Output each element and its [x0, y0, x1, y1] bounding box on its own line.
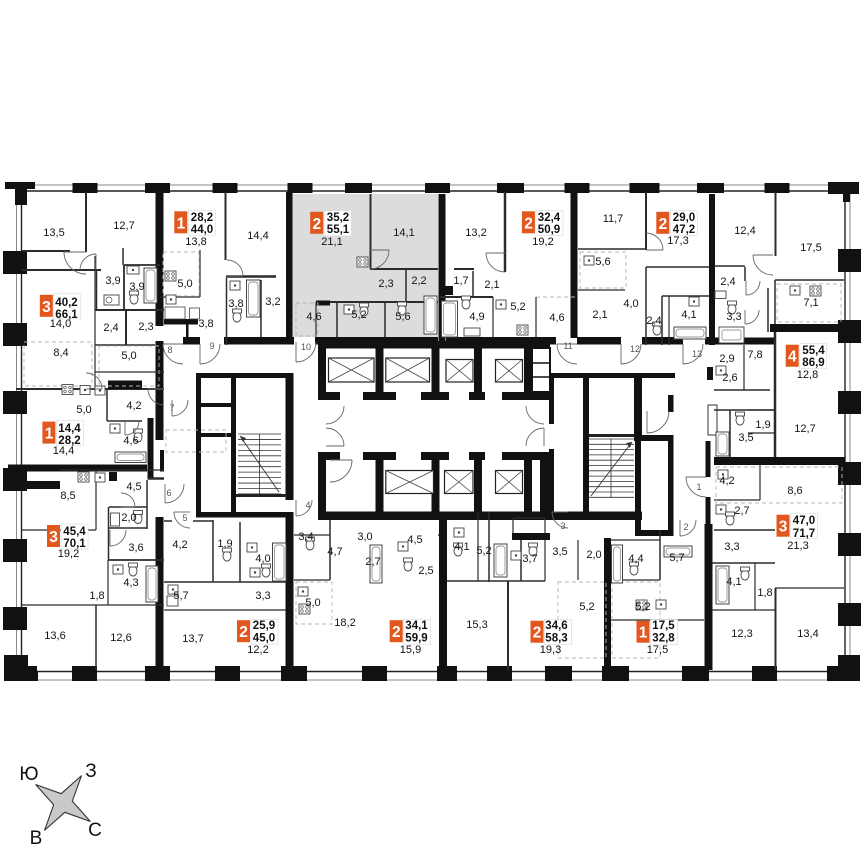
svg-text:12,4: 12,4: [734, 225, 755, 237]
svg-text:4,2: 4,2: [172, 539, 187, 551]
svg-text:47,0: 47,0: [793, 515, 815, 527]
svg-text:5,2: 5,2: [476, 545, 491, 557]
svg-text:55,4: 55,4: [802, 345, 825, 357]
svg-text:4,9: 4,9: [469, 311, 484, 323]
svg-text:2,9: 2,9: [719, 353, 734, 365]
svg-text:13,2: 13,2: [465, 227, 486, 239]
svg-text:5,2: 5,2: [635, 601, 650, 613]
svg-text:3: 3: [49, 529, 58, 546]
svg-text:2: 2: [392, 624, 401, 641]
svg-text:4,7: 4,7: [327, 546, 342, 558]
svg-text:3,3: 3,3: [724, 541, 739, 553]
svg-text:13,8: 13,8: [185, 236, 206, 248]
svg-text:17,5: 17,5: [800, 242, 821, 254]
svg-text:1,8: 1,8: [757, 587, 772, 599]
svg-text:3,9: 3,9: [129, 281, 144, 293]
svg-text:Ю: Ю: [19, 764, 38, 785]
svg-text:2,3: 2,3: [378, 278, 393, 290]
svg-text:71,7: 71,7: [793, 528, 815, 540]
svg-text:14,4: 14,4: [53, 445, 74, 457]
svg-text:4: 4: [788, 349, 797, 366]
svg-text:8: 8: [167, 345, 172, 355]
svg-text:4,5: 4,5: [407, 534, 422, 546]
svg-text:15,3: 15,3: [466, 619, 487, 631]
svg-text:12: 12: [630, 344, 640, 354]
svg-text:3,5: 3,5: [552, 546, 567, 558]
svg-text:12,7: 12,7: [113, 220, 134, 232]
svg-text:3,4: 3,4: [298, 531, 313, 543]
svg-text:29,0: 29,0: [673, 212, 695, 224]
svg-text:4,5: 4,5: [126, 481, 141, 493]
svg-text:5,6: 5,6: [395, 311, 410, 323]
svg-text:19,3: 19,3: [540, 644, 561, 656]
svg-text:13: 13: [692, 349, 702, 359]
svg-text:34,6: 34,6: [545, 620, 567, 632]
svg-text:10: 10: [301, 342, 311, 352]
svg-text:2: 2: [659, 216, 668, 233]
svg-text:4,4: 4,4: [628, 553, 643, 565]
svg-text:3,3: 3,3: [726, 311, 741, 323]
svg-text:3: 3: [779, 519, 788, 536]
svg-text:32,4: 32,4: [538, 212, 561, 224]
svg-text:4,1: 4,1: [726, 576, 741, 588]
svg-text:1: 1: [45, 426, 54, 443]
svg-text:4,0: 4,0: [623, 298, 638, 310]
svg-text:7: 7: [169, 403, 174, 413]
svg-text:59,9: 59,9: [405, 633, 427, 645]
svg-text:17,5: 17,5: [652, 620, 675, 632]
svg-text:1,8: 1,8: [89, 590, 104, 602]
svg-text:13,4: 13,4: [797, 628, 818, 640]
svg-text:45,4: 45,4: [63, 526, 86, 538]
svg-text:45,0: 45,0: [253, 633, 275, 645]
svg-text:14,0: 14,0: [50, 318, 71, 330]
svg-text:11,7: 11,7: [603, 213, 624, 225]
svg-text:4,2: 4,2: [719, 475, 734, 487]
svg-text:9: 9: [209, 341, 214, 351]
svg-text:40,2: 40,2: [55, 297, 77, 309]
svg-text:11: 11: [563, 341, 572, 351]
svg-text:5,7: 5,7: [669, 552, 684, 564]
svg-text:2,7: 2,7: [365, 556, 380, 568]
svg-text:2: 2: [683, 522, 688, 532]
svg-text:14,4: 14,4: [247, 230, 268, 242]
svg-text:1: 1: [177, 215, 186, 232]
svg-text:12,3: 12,3: [731, 628, 752, 640]
svg-text:34,1: 34,1: [405, 620, 428, 632]
svg-text:2,4: 2,4: [720, 276, 735, 288]
svg-text:4,1: 4,1: [454, 541, 469, 553]
svg-text:3,2: 3,2: [265, 296, 280, 308]
svg-text:7,1: 7,1: [803, 297, 818, 309]
svg-text:2,3: 2,3: [138, 321, 153, 333]
svg-text:12,8: 12,8: [797, 369, 818, 381]
svg-text:2,2: 2,2: [411, 275, 426, 287]
svg-text:21,3: 21,3: [787, 540, 808, 552]
svg-text:3,8: 3,8: [198, 318, 213, 330]
svg-text:3,5: 3,5: [738, 432, 753, 444]
svg-text:55,1: 55,1: [327, 224, 350, 236]
svg-text:14,4: 14,4: [58, 423, 81, 435]
svg-text:4,6: 4,6: [123, 435, 138, 447]
svg-text:3: 3: [42, 299, 51, 316]
svg-text:12,2: 12,2: [247, 644, 268, 656]
svg-text:3,3: 3,3: [255, 590, 270, 602]
svg-text:5: 5: [182, 513, 187, 523]
svg-text:4,6: 4,6: [549, 312, 564, 324]
svg-text:44,0: 44,0: [191, 224, 213, 236]
svg-text:28,2: 28,2: [191, 212, 213, 224]
svg-text:12,7: 12,7: [794, 423, 815, 435]
svg-text:4,3: 4,3: [123, 577, 138, 589]
svg-text:5,2: 5,2: [579, 601, 594, 613]
svg-text:13,5: 13,5: [43, 227, 64, 239]
svg-text:3,9: 3,9: [105, 275, 120, 287]
svg-text:13,7: 13,7: [182, 633, 203, 645]
svg-text:1: 1: [696, 482, 701, 492]
svg-text:17,3: 17,3: [667, 235, 688, 247]
svg-text:8,6: 8,6: [787, 485, 802, 497]
svg-text:2,4: 2,4: [646, 315, 661, 327]
svg-text:4,6: 4,6: [306, 311, 321, 323]
svg-text:8,4: 8,4: [53, 347, 68, 359]
svg-text:3,6: 3,6: [128, 542, 143, 554]
svg-text:5,6: 5,6: [595, 256, 610, 268]
svg-text:2,0: 2,0: [586, 549, 601, 561]
svg-text:4,0: 4,0: [255, 553, 270, 565]
svg-text:50,9: 50,9: [538, 224, 560, 236]
svg-text:2,6: 2,6: [722, 372, 737, 384]
svg-text:13,6: 13,6: [44, 630, 65, 642]
svg-text:В: В: [30, 828, 43, 849]
svg-text:2,5: 2,5: [418, 565, 433, 577]
svg-text:4: 4: [305, 500, 310, 510]
svg-text:5,2: 5,2: [510, 301, 525, 313]
svg-text:58,3: 58,3: [545, 633, 567, 645]
svg-text:1,7: 1,7: [453, 275, 468, 287]
svg-text:8,5: 8,5: [60, 490, 75, 502]
svg-text:21,1: 21,1: [321, 236, 342, 248]
svg-text:5,0: 5,0: [305, 597, 320, 609]
svg-text:С: С: [88, 820, 102, 841]
svg-text:2: 2: [312, 216, 321, 233]
svg-text:З: З: [85, 761, 96, 782]
svg-text:5,0: 5,0: [121, 350, 136, 362]
svg-text:3,8: 3,8: [228, 298, 243, 310]
svg-text:2,4: 2,4: [103, 322, 118, 334]
svg-text:1,9: 1,9: [217, 538, 232, 550]
svg-text:3: 3: [560, 521, 565, 531]
svg-text:35,2: 35,2: [327, 212, 349, 224]
svg-text:2,1: 2,1: [484, 279, 499, 291]
svg-text:2: 2: [239, 624, 248, 641]
svg-text:25,9: 25,9: [253, 620, 275, 632]
svg-text:2,0: 2,0: [121, 512, 136, 524]
svg-text:2: 2: [524, 215, 533, 232]
svg-text:2,7: 2,7: [734, 505, 749, 517]
svg-text:19,2: 19,2: [532, 236, 553, 248]
svg-text:4,1: 4,1: [681, 309, 696, 321]
svg-text:18,2: 18,2: [334, 617, 355, 629]
svg-text:5,0: 5,0: [76, 404, 91, 416]
svg-text:12,6: 12,6: [110, 632, 131, 644]
svg-text:5,0: 5,0: [177, 278, 192, 290]
svg-text:19,2: 19,2: [58, 548, 79, 560]
svg-text:86,9: 86,9: [802, 357, 824, 369]
svg-text:3,0: 3,0: [357, 531, 372, 543]
svg-text:5,7: 5,7: [173, 590, 188, 602]
svg-text:6: 6: [166, 488, 171, 498]
svg-text:1,9: 1,9: [755, 419, 770, 431]
svg-text:7,8: 7,8: [747, 349, 762, 361]
svg-text:5,2: 5,2: [351, 309, 366, 321]
svg-text:4,2: 4,2: [126, 400, 141, 412]
svg-text:32,8: 32,8: [652, 633, 675, 645]
svg-text:1: 1: [639, 625, 648, 642]
svg-text:15,9: 15,9: [400, 644, 421, 656]
svg-text:3,7: 3,7: [522, 553, 537, 565]
svg-text:2,1: 2,1: [592, 309, 607, 321]
svg-text:14,1: 14,1: [393, 227, 414, 239]
svg-text:2: 2: [533, 625, 542, 642]
svg-text:17,5: 17,5: [647, 644, 668, 656]
